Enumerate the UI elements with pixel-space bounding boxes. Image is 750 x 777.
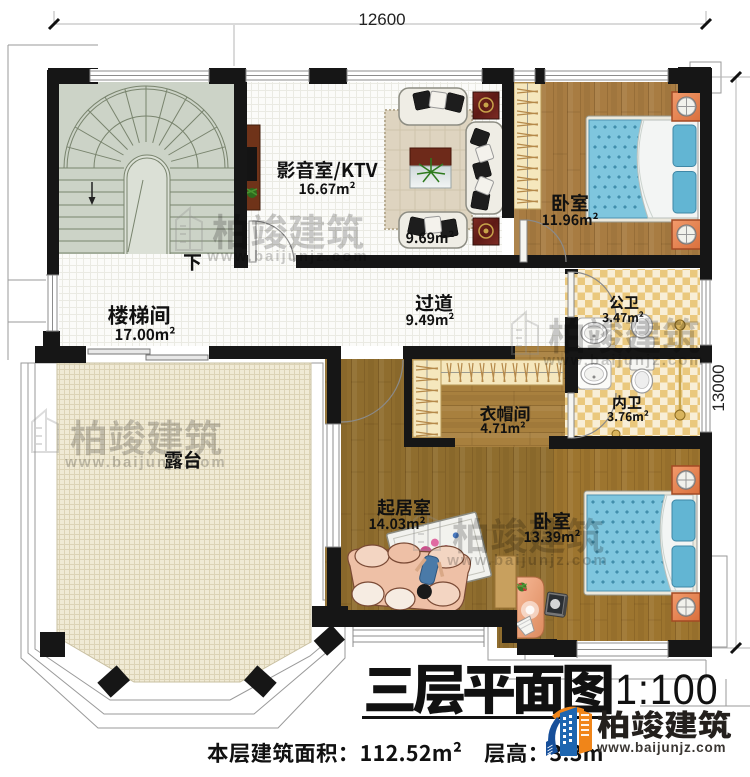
- svg-text:www.baijunjz.com: www.baijunjz.com: [446, 552, 608, 569]
- svg-text:www.baijunjz.com: www.baijunjz.com: [206, 248, 368, 265]
- svg-text:www.baijunjz.com: www.baijunjz.com: [596, 740, 726, 755]
- svg-text:12600: 12600: [358, 10, 405, 29]
- svg-text:www.baijunjz.com: www.baijunjz.com: [64, 454, 226, 471]
- svg-text:www.baijunjz.com: www.baijunjz.com: [542, 352, 704, 369]
